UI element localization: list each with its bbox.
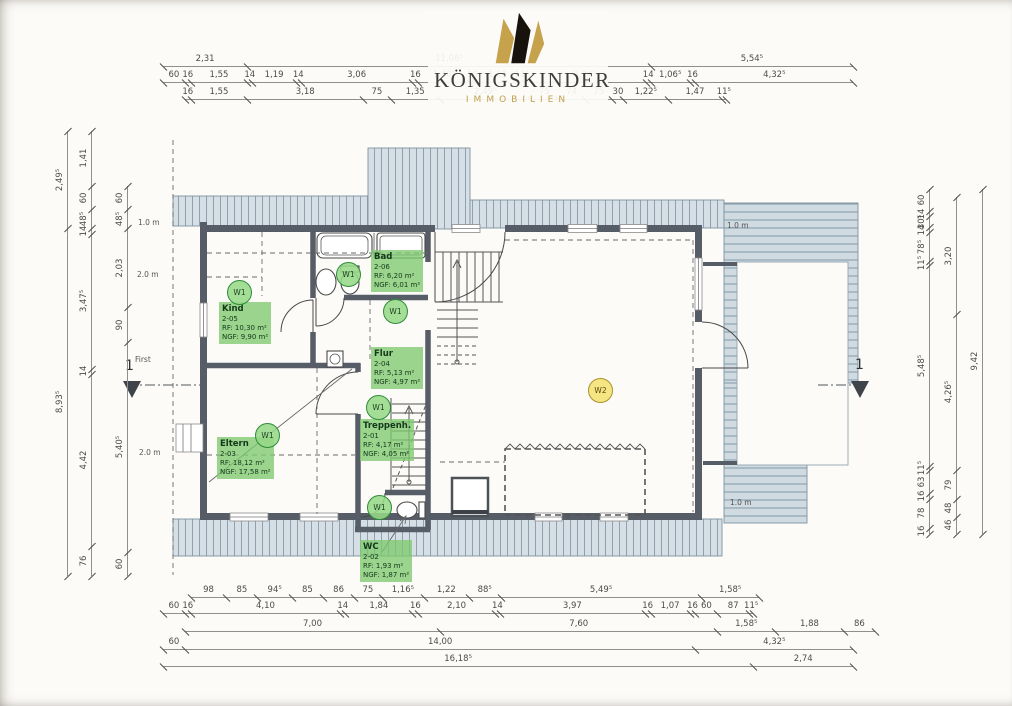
dimension-tick — [88, 543, 96, 551]
dimension-label: 1,19 — [265, 71, 284, 80]
dimension-label: 78 — [918, 508, 927, 519]
dimension-label: 2,31 — [196, 55, 215, 64]
dimension-tick — [953, 514, 961, 522]
room-label-wc: WC 2-02 RF: 1,93 m² NGF: 1,87 m² — [360, 540, 412, 582]
dimension-label: 60 — [116, 192, 125, 203]
dimension-column-right_outer: 9,42 — [982, 189, 983, 534]
dimension-label: 16 — [687, 602, 698, 611]
dimension-tick — [465, 594, 473, 602]
dimension-tick — [160, 79, 168, 87]
dimension-label: 60 — [169, 71, 180, 80]
unit-marker-w1-treppenhaus: W1 — [366, 395, 391, 420]
dimension-label: 5,54⁵ — [741, 55, 763, 64]
dimension-tick — [953, 496, 961, 504]
dimension-label: 14 — [80, 225, 89, 236]
dimension-label: 60 — [80, 192, 89, 203]
dimension-tick — [692, 646, 700, 654]
dimension-tick — [124, 339, 132, 347]
dimension-tick — [124, 304, 132, 312]
dimension-label: 4,42 — [80, 451, 89, 470]
brand-name: KÖNIGSKINDER — [434, 68, 602, 93]
dimension-label: 16 — [687, 71, 698, 80]
dimension-label: 85 — [302, 586, 313, 595]
dimension-label: 1,84 — [369, 602, 388, 611]
dimension-label: 94⁵ — [268, 586, 282, 595]
dimension-label: 16 — [918, 491, 927, 502]
dimension-label: 30 — [613, 88, 624, 97]
dimension-tick — [160, 610, 168, 618]
dimension-label: 16 — [918, 525, 927, 536]
dimension-label: 11⁵ — [744, 602, 758, 611]
dimension-label: 60 — [918, 195, 927, 206]
dimension-tick — [88, 206, 96, 214]
dimension-label: 3,97 — [563, 602, 582, 611]
dimension-label: 2,03 — [116, 258, 125, 277]
dimension-label: 1,58⁵ — [719, 586, 741, 595]
dimension-label: 5,40⁵ — [116, 436, 125, 458]
dimension-label: 60 — [169, 638, 180, 647]
dimension-label: 9,42 — [971, 352, 980, 371]
dimension-tick — [64, 128, 72, 136]
dimension-label: 86 — [333, 586, 344, 595]
dimension-label: 75 — [363, 586, 374, 595]
unit-marker-w1-kind: W1 — [227, 280, 252, 305]
dimension-label: 2,10 — [447, 602, 466, 611]
dimension-row-bottom_2: 60164,10141,84162,10143,97161,0716608711… — [163, 613, 753, 614]
dimension-tick — [421, 594, 429, 602]
dimension-label: 14 — [244, 71, 255, 80]
dimension-label: 1,22 — [437, 586, 456, 595]
dimension-label: 1,55 — [210, 88, 229, 97]
dimension-tick — [387, 96, 395, 104]
dimension-label: 4,32⁵ — [763, 638, 785, 647]
dimension-label: 3,20 — [945, 246, 954, 265]
dimension-tick — [124, 225, 132, 233]
dimension-tick — [88, 572, 96, 580]
dimension-label: 8,93⁵ — [56, 391, 65, 413]
dimension-label: 1,47 — [685, 88, 704, 97]
dimension-annotations: 2,3111,06⁵5,54⁵60161,55141,19143,06161,4… — [0, 0, 1012, 706]
dimension-tick — [953, 467, 961, 475]
dimension-tick — [750, 663, 758, 671]
dimension-label: 16,18⁵ — [444, 655, 472, 664]
unit-marker-w1-eltern: W1 — [255, 423, 280, 448]
dimension-label: 1,07 — [661, 602, 680, 611]
dimension-tick — [850, 63, 858, 71]
dimension-label: 14 — [337, 602, 348, 611]
dimension-row-bottom_1: 988594⁵8586751,16⁵1,2288⁵5,49⁵1,58⁵ — [191, 597, 759, 598]
dimension-label: 7,60 — [569, 620, 588, 629]
dimension-label: 3,18 — [296, 88, 315, 97]
dimension-tick — [850, 79, 858, 87]
dimension-tick — [850, 646, 858, 654]
dimension-label: 90 — [116, 319, 125, 330]
dimension-tick — [979, 530, 987, 538]
room-label-kind: Kind 2-05 RF: 10,30 m² NGF: 9,90 m² — [219, 302, 271, 344]
dimension-label: 60 — [116, 559, 125, 570]
dimension-row-bottom_3: 7,007,601,58⁵1,8886 — [185, 631, 875, 632]
dimension-label: 1,55 — [210, 71, 229, 80]
dimension-column-left_outer: 2,49⁵8,93⁵ — [67, 131, 68, 576]
dimension-tick — [64, 225, 72, 233]
dimension-label: 14 — [80, 366, 89, 377]
dimension-column-left_mid: 1,416048⁵143,47⁵144,4276 — [91, 131, 92, 576]
dimension-tick — [124, 549, 132, 557]
dimension-label: 4,32⁵ — [763, 71, 785, 80]
dimension-tick — [244, 96, 252, 104]
dimension-label: 48⁵ — [116, 211, 125, 225]
dimension-label: 4,10 — [256, 602, 275, 611]
dimension-tick — [181, 628, 189, 636]
dimension-row-bottom_4: 6014,004,32⁵ — [163, 649, 853, 650]
dimension-tick — [320, 594, 328, 602]
dimension-label: 78⁵ — [918, 240, 927, 254]
dimension-tick — [351, 594, 359, 602]
brand-tagline: IMMOBILIEN — [434, 95, 602, 105]
dimension-label: 79 — [945, 479, 954, 490]
dimension-tick — [160, 646, 168, 654]
dimension-column-right_mid: 3,204,26⁵794846 — [956, 197, 957, 534]
dimension-tick — [124, 572, 132, 580]
dimension-label: 1,22⁵ — [635, 88, 657, 97]
dimension-label: 88⁵ — [478, 586, 492, 595]
dimension-label: 3,47⁵ — [80, 290, 89, 312]
dimension-tick — [979, 186, 987, 194]
dimension-tick — [850, 663, 858, 671]
dimension-tick — [223, 594, 231, 602]
logo: KÖNIGSKINDER IMMOBILIEN — [428, 10, 608, 105]
unit-marker-w1-wc: W1 — [367, 495, 392, 520]
dimension-tick — [840, 628, 848, 636]
dimension-column-left_inner: 6048⁵2,03905,40⁵60 — [127, 186, 128, 576]
dimension-label: 11⁵ — [717, 88, 731, 97]
dimension-column-right_inner: 601430⁵1478⁵11⁵5,48⁵11⁵63167816 — [929, 189, 930, 534]
dimension-tick — [289, 594, 297, 602]
dimension-tick — [124, 206, 132, 214]
dimension-label: 4,26⁵ — [945, 381, 954, 403]
dimension-tick — [714, 610, 722, 618]
dimension-tick — [953, 530, 961, 538]
dimension-tick — [124, 182, 132, 190]
dimension-label: 86 — [854, 620, 865, 629]
dimension-label: 63 — [918, 476, 927, 487]
dimension-label: 5,48⁵ — [918, 355, 927, 377]
dimension-label: 14,00 — [428, 638, 452, 647]
dimension-label: 85 — [237, 586, 248, 595]
room-label-flur: Flur 2-04 RF: 5,13 m² NGF: 4,97 m² — [371, 347, 423, 389]
dimension-tick — [772, 628, 780, 636]
dimension-label: 1,35 — [406, 88, 425, 97]
dimension-label: 98 — [203, 586, 214, 595]
dimension-tick — [160, 63, 168, 71]
room-label-treppenhaus: Treppenh. 2-01 RF: 4,17 m² NGF: 4,05 m² — [360, 419, 414, 461]
dimension-label: 14 — [918, 224, 927, 235]
dimension-label: 76 — [80, 555, 89, 566]
dimension-tick — [620, 96, 628, 104]
dimension-tick — [160, 663, 168, 671]
dimension-tick — [64, 572, 72, 580]
dimension-tick — [360, 96, 368, 104]
unit-marker-w1-flur: W1 — [383, 299, 408, 324]
dimension-label: 2,74 — [794, 655, 813, 664]
dimension-label: 3,06 — [347, 71, 366, 80]
floor-plan-page: KÖNIGSKINDER IMMOBILIEN Kind 2-05 RF: 10… — [0, 0, 1012, 706]
room-label-bad: Bad 2-06 RF: 6,20 m² NGF: 6,01 m² — [371, 250, 423, 292]
dimension-label: 1,16⁵ — [392, 586, 414, 595]
unit-marker-w1-bad: W1 — [336, 262, 361, 287]
dimension-label: 1,06⁵ — [659, 71, 681, 80]
dimension-tick — [88, 128, 96, 136]
dimension-label: 48 — [945, 503, 954, 514]
unit-marker-w2: W2 — [588, 378, 613, 403]
dimension-tick — [181, 646, 189, 654]
dimension-label: 87 — [728, 602, 739, 611]
dimension-label: 48⁵ — [80, 211, 89, 225]
dimension-label: 46 — [945, 520, 954, 531]
dimension-label: 7,00 — [303, 620, 322, 629]
dimension-tick — [872, 628, 880, 636]
dimension-row-bottom_5: 16,18⁵2,74 — [163, 666, 853, 667]
dimension-tick — [437, 628, 445, 636]
dimension-label: 1,41 — [80, 149, 89, 168]
dimension-label: 1,58⁵ — [735, 620, 757, 629]
dimension-label: 2,49⁵ — [56, 168, 65, 190]
dimension-label: 75 — [371, 88, 382, 97]
dimension-tick — [88, 182, 96, 190]
dimension-tick — [926, 186, 934, 194]
dimension-tick — [714, 628, 722, 636]
dimension-tick — [953, 194, 961, 202]
crown-icon — [487, 10, 549, 66]
dimension-tick — [953, 311, 961, 319]
dimension-label: 5,49⁵ — [590, 586, 612, 595]
dimension-label: 60 — [701, 602, 712, 611]
dimension-label: 1,88 — [800, 620, 819, 629]
dimension-label: 60 — [169, 602, 180, 611]
dimension-tick — [665, 96, 673, 104]
